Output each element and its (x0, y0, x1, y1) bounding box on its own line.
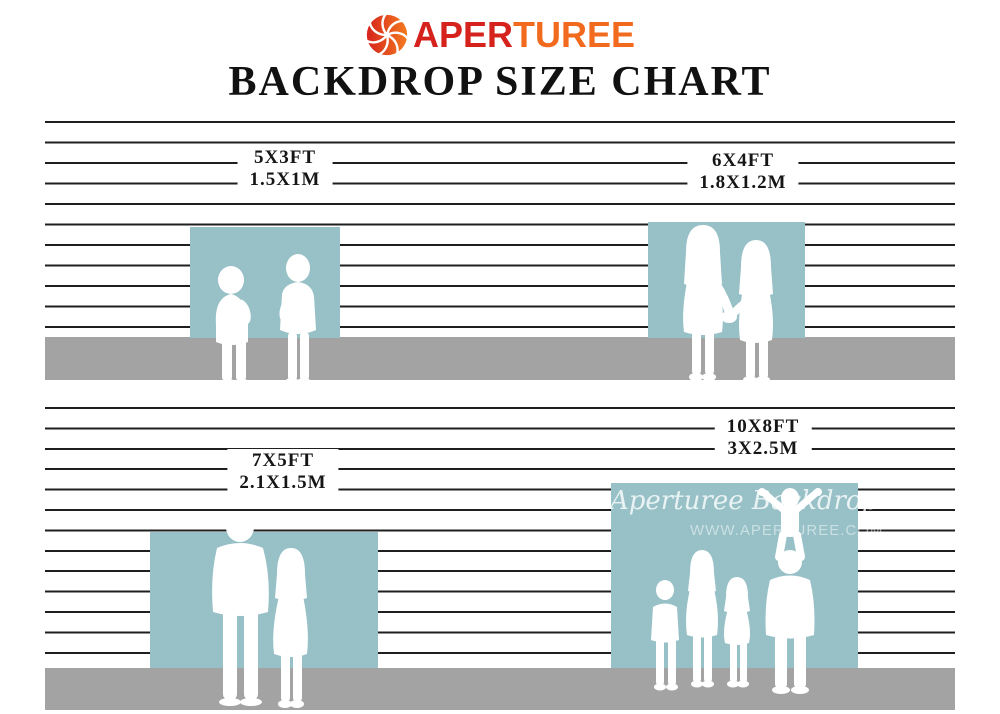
size-6x4-m: 1.8X1.2M (699, 172, 786, 194)
brand-wordmark: APERTUREE (413, 13, 635, 57)
floor-top (45, 337, 955, 380)
backdrop-size-chart-page: APERTUREE BACKDROP SIZE CHART 5X3FT 1.5X… (0, 0, 1000, 714)
size-label-5x3: 5X3FT 1.5X1M (238, 146, 333, 192)
size-5x3-m: 1.5X1M (250, 169, 321, 191)
man-and-woman-silhouette (195, 512, 340, 708)
size-5x3-ft: 5X3FT (250, 147, 321, 169)
brand-wordmark-secondary: TUREE (513, 14, 635, 55)
brand-logo: APERTUREE (0, 12, 1000, 58)
mother-and-girl-silhouette (668, 222, 798, 384)
size-7x5-ft: 7X5FT (239, 450, 326, 472)
size-label-7x5: 7X5FT 2.1X1.5M (227, 449, 338, 495)
aperture-shutter-icon (365, 13, 409, 57)
size-7x5-m: 2.1X1.5M (239, 472, 326, 494)
lined-wall-top (45, 121, 955, 329)
watermark-script-text: Aperturee Backdrop (610, 486, 850, 516)
size-label-6x4: 6X4FT 1.8X1.2M (687, 149, 798, 195)
page-title: BACKDROP SIZE CHART (0, 58, 1000, 106)
watermark-url-text: WWW.APERTUREE.COM (690, 522, 880, 539)
size-10x8-m: 3X2.5M (727, 438, 800, 460)
size-label-10x8: 10X8FT 3X2.5M (715, 415, 812, 461)
size-10x8-ft: 10X8FT (727, 416, 800, 438)
brand-wordmark-primary: APER (413, 14, 513, 55)
two-toddlers-silhouette (198, 250, 333, 390)
family-with-child-on-shoulders-silhouette (640, 485, 850, 695)
size-6x4-ft: 6X4FT (699, 150, 786, 172)
